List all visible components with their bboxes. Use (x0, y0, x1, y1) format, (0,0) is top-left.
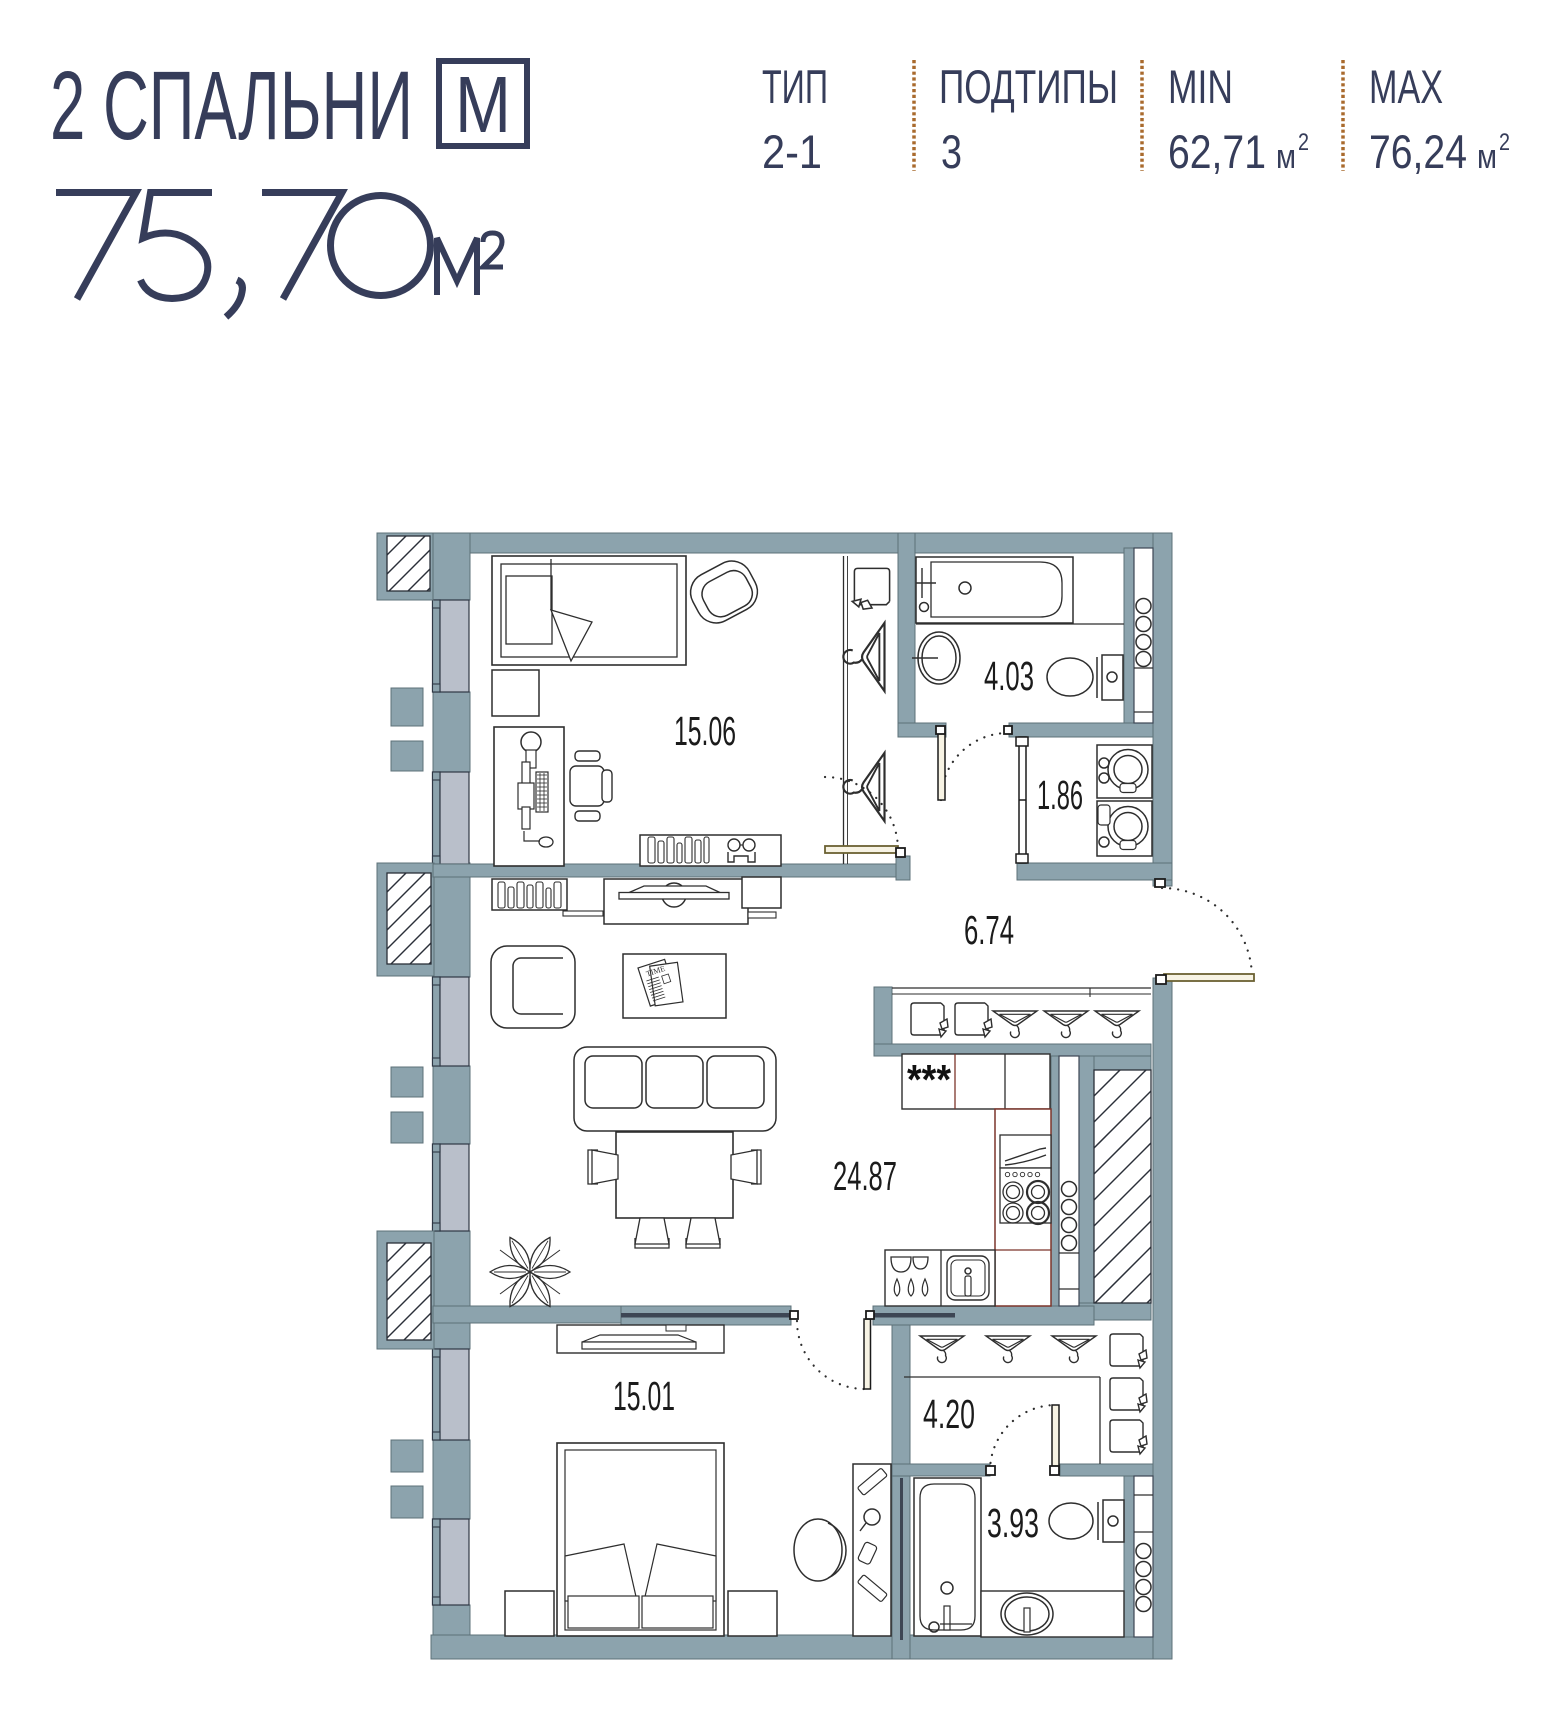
svg-text:м: м (1477, 138, 1497, 176)
svg-text:ПОДТИПЫ: ПОДТИПЫ (939, 60, 1118, 113)
svg-text:24.87: 24.87 (833, 1153, 897, 1199)
svg-text:М: М (455, 60, 511, 149)
svg-text:4.20: 4.20 (923, 1391, 975, 1437)
svg-text:15.01: 15.01 (613, 1373, 675, 1419)
svg-text:2 СПАЛЬНИ: 2 СПАЛЬНИ (50, 51, 413, 160)
svg-text:15.06: 15.06 (674, 708, 736, 754)
svg-text:3.93: 3.93 (987, 1500, 1039, 1546)
svg-text:76,24: 76,24 (1369, 125, 1467, 178)
svg-text:ТИП: ТИП (762, 60, 828, 113)
svg-text:62,71: 62,71 (1168, 125, 1266, 178)
svg-text:MAX: MAX (1369, 60, 1443, 113)
svg-text:1.86: 1.86 (1037, 772, 1083, 818)
svg-text:2-1: 2-1 (762, 125, 822, 178)
svg-text:MIN: MIN (1168, 60, 1233, 113)
svg-text:2: 2 (1298, 129, 1309, 156)
svg-text:***: *** (907, 1056, 952, 1103)
svg-text:2: 2 (1499, 129, 1510, 156)
svg-text:4.03: 4.03 (984, 653, 1034, 699)
svg-text:м: м (1276, 138, 1296, 176)
svg-text:6.74: 6.74 (964, 907, 1014, 953)
svg-text:3: 3 (941, 125, 962, 178)
